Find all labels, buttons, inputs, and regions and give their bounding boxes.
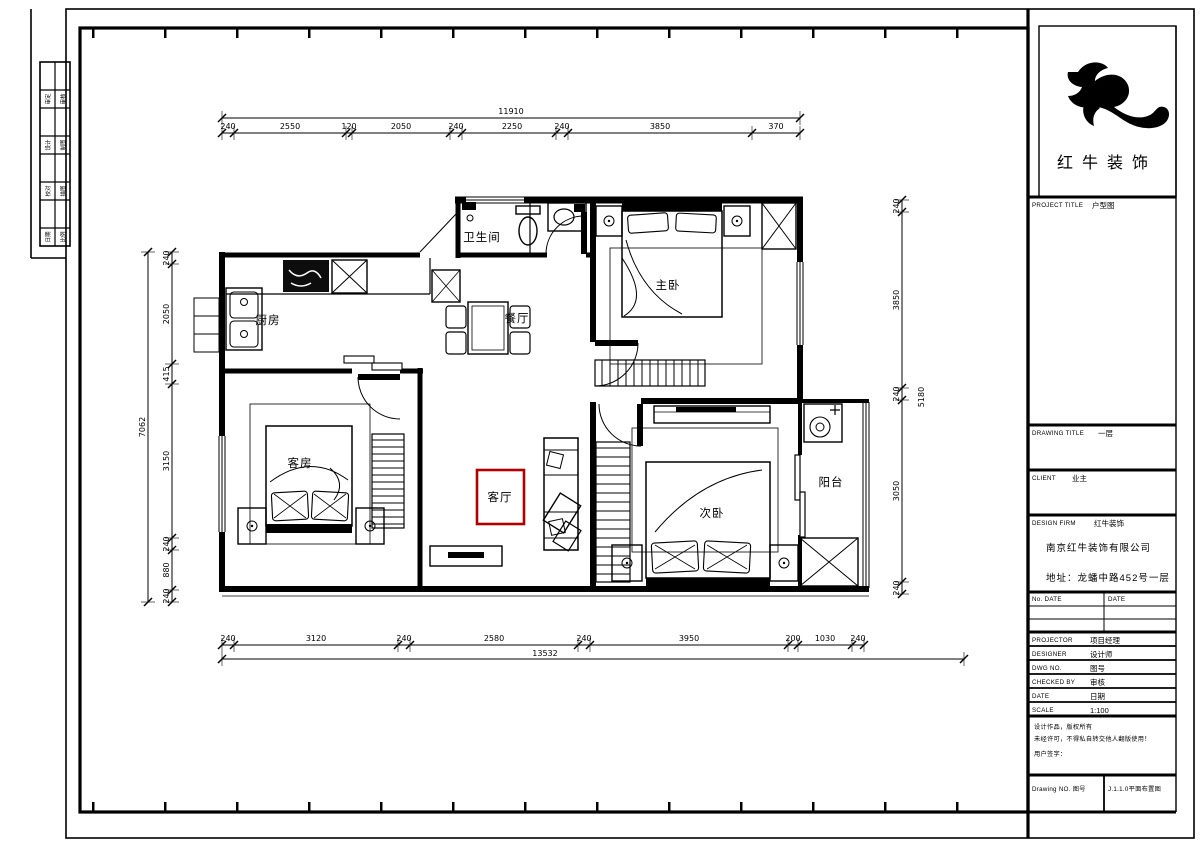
project-title-value: 户型图: [1092, 200, 1115, 210]
dim-text: 2580: [484, 634, 504, 643]
ac-platform: [194, 298, 219, 352]
master-bed: [622, 211, 722, 317]
dim-text: 240: [554, 122, 569, 131]
master-door-leaf: [595, 340, 638, 346]
entry-door-swing: [546, 216, 584, 254]
guest-room-furniture: [238, 404, 404, 544]
strip-label: 制图: [59, 139, 67, 151]
blanket-fold: [655, 470, 762, 532]
strip-label: 审核: [59, 93, 67, 105]
dim-text: 120: [341, 122, 356, 131]
note-line: 设计作品，版权所有: [1034, 723, 1092, 731]
dim-labels-top: 240 2550 120 2050 240 2250 240 3850 370 …: [220, 107, 783, 131]
dim-text: 3850: [650, 122, 670, 131]
headboard: [622, 202, 722, 211]
dim-text: 240: [576, 634, 591, 643]
room-label-balcony: 阳台: [819, 475, 844, 489]
room-label-dining: 餐厅: [505, 311, 530, 325]
drawing-canvas: 审定 审核 设计 制图 校对 描图 日期 比例 红牛装饰: [0, 0, 1200, 845]
window-gap: [216, 436, 225, 532]
dim-text: 3950: [679, 634, 699, 643]
dim-text: 200: [785, 634, 800, 643]
title-block-text: PROJECT TITLE 户型图 DRAWING TITLE 一层 CLIEN…: [1032, 200, 1170, 793]
dim-text-overall: 11910: [498, 107, 523, 116]
slider-panel: [795, 455, 800, 500]
company-name: 南京红牛装饰有限公司: [1046, 542, 1151, 554]
cad-floorplan-sheet: 审定 审核 设计 制图 校对 描图 日期 比例 红牛装饰: [0, 0, 1200, 845]
dim-text: 240: [396, 634, 411, 643]
row-value: 1:100: [1090, 706, 1109, 715]
rug: [610, 248, 762, 364]
dim-text: 240: [892, 386, 901, 401]
master-bedroom-furniture: [595, 202, 796, 386]
guest-wardrobe: [372, 434, 404, 528]
second-door-swing: [599, 404, 641, 446]
headboard: [646, 578, 770, 587]
dim-text: 3120: [306, 634, 326, 643]
dim-text: 3850: [892, 290, 901, 310]
dim-text-overall: 7062: [138, 417, 147, 437]
design-firm-label: DESIGN FIRM: [1032, 520, 1076, 527]
drawing-title-label: DRAWING TITLE: [1032, 430, 1084, 437]
dim-text-overall: 5180: [917, 387, 926, 407]
revision-header-left: No. DATE: [1032, 596, 1062, 603]
row-label: DWG NO.: [1032, 665, 1062, 672]
shaft-x: [800, 538, 858, 586]
tv: [448, 552, 484, 558]
company-address: 地址：龙蟠中路452号一层: [1046, 572, 1170, 584]
living-room-highlight[interactable]: 客厅: [477, 470, 524, 524]
dim-text: 2550: [280, 122, 300, 131]
cooktop-hatch: [283, 260, 329, 292]
dim-text: 240: [892, 198, 901, 213]
drawing-no-label: Drawing NO. 图号: [1032, 786, 1086, 793]
blanket-fold: [622, 240, 682, 316]
dining-chair: [446, 332, 466, 354]
note-line: 未经许可，不得私自转交他人翻版使用！: [1034, 735, 1151, 743]
dining-table: [468, 302, 508, 354]
dim-text: 3050: [892, 481, 901, 501]
revision-header-right: DATE: [1108, 596, 1125, 603]
row-value: 设计师: [1090, 649, 1113, 659]
room-label-living[interactable]: 客厅: [488, 490, 513, 504]
bull-icon: [1068, 62, 1169, 128]
dim-text: 370: [768, 122, 783, 131]
dim-overall-bottom: [218, 652, 968, 666]
headboard: [266, 524, 352, 533]
brand-logo: 红牛装饰: [1057, 62, 1169, 172]
dining-chair: [446, 306, 466, 328]
drawing-no-value: J.1.1.0平面布置图: [1108, 785, 1161, 793]
blanket-fold: [270, 466, 348, 500]
room-label-master: 主卧: [656, 279, 681, 292]
second-bed: [646, 462, 770, 578]
brand-name: 红牛装饰: [1057, 154, 1157, 172]
pillow: [627, 213, 668, 234]
strip-label: 校对: [44, 185, 52, 197]
wardrobe-slats: [596, 448, 630, 574]
balcony-fixtures: [800, 404, 858, 586]
client-value: 业主: [1072, 473, 1088, 483]
toilet-bowl: [519, 217, 537, 245]
dim-text: 880: [162, 562, 171, 577]
row-value: 项目经理: [1090, 635, 1120, 645]
dim-text: 2050: [162, 304, 171, 324]
dim-text: 240: [162, 250, 171, 265]
dim-text: 1030: [815, 634, 835, 643]
slider-panel: [800, 492, 805, 537]
strip-label: 比例: [59, 231, 67, 243]
shaft-x: [762, 203, 796, 249]
dim-text: 240: [220, 634, 235, 643]
second-wardrobe: [596, 442, 630, 582]
strip-label: 日期: [45, 231, 52, 243]
balcony-window: [863, 402, 869, 588]
slider-panel: [344, 356, 374, 363]
row-label: CHECKED BY: [1032, 679, 1075, 686]
dim-text: 240: [892, 580, 901, 595]
design-firm-value: 红牛装饰: [1094, 518, 1124, 528]
guest-door-swing: [358, 377, 400, 419]
row-label: PROJECTOR: [1032, 637, 1073, 644]
dim-text: 2250: [502, 122, 522, 131]
dim-text: 240: [220, 122, 235, 131]
sofa-pillow: [547, 452, 564, 469]
dim-text: 240: [850, 634, 865, 643]
second-door-leaf: [637, 404, 643, 446]
dim-text: 3150: [162, 451, 171, 471]
row-label: DESIGNER: [1032, 651, 1067, 658]
second-bedroom-furniture: [596, 406, 798, 587]
pillow: [676, 213, 717, 233]
slider-panel: [372, 363, 402, 370]
dim-text: 240: [448, 122, 463, 131]
wardrobe-slats: [372, 440, 404, 524]
dining-set: [446, 302, 530, 354]
dim-text: 2050: [391, 122, 411, 131]
dim-labels-bottom: 240 3120 240 2580 240 3950 200 1030 240 …: [220, 634, 865, 658]
strip-label: 审定: [44, 93, 52, 105]
room-label-bathroom: 卫生间: [463, 230, 501, 244]
dining-chair: [510, 332, 530, 354]
dim-text-overall: 13532: [532, 649, 557, 658]
master-door-swing: [595, 343, 638, 386]
dim-text: 240: [162, 536, 171, 551]
row-value: 日期: [1090, 692, 1105, 701]
row-value: 审核: [1090, 677, 1106, 687]
room-label-guest: 客房: [288, 456, 313, 470]
side-table: [553, 521, 581, 551]
dim-labels-left: 240 2050 415 3150 240 880 240 7062: [138, 250, 171, 603]
strip-label: 设计: [44, 139, 52, 151]
row-label: SCALE: [1032, 707, 1054, 714]
guest-door-leaf: [358, 374, 400, 380]
flue-x: [332, 260, 367, 293]
strip-label: 描图: [59, 185, 67, 197]
note-line: 用户签字：: [1034, 750, 1066, 758]
room-label-kitchen: 厨房: [256, 314, 281, 327]
rug: [632, 428, 778, 552]
project-title-label: PROJECT TITLE: [1032, 202, 1083, 209]
row-value: 图号: [1090, 664, 1105, 673]
client-label: CLIENT: [1032, 475, 1056, 482]
kitchen-fixtures: [194, 258, 460, 370]
dim-labels-right: 240 3850 240 3050 240 5180: [892, 198, 926, 595]
drawing-title-value: 一层: [1098, 429, 1114, 438]
room-label-second: 次卧: [700, 506, 725, 520]
toilet-tank: [516, 206, 540, 214]
dim-text: 415: [162, 366, 171, 381]
washbasin: [554, 209, 574, 225]
row-label: DATE: [1032, 693, 1049, 700]
doors: [358, 212, 643, 446]
dim-text: 240: [162, 588, 171, 603]
